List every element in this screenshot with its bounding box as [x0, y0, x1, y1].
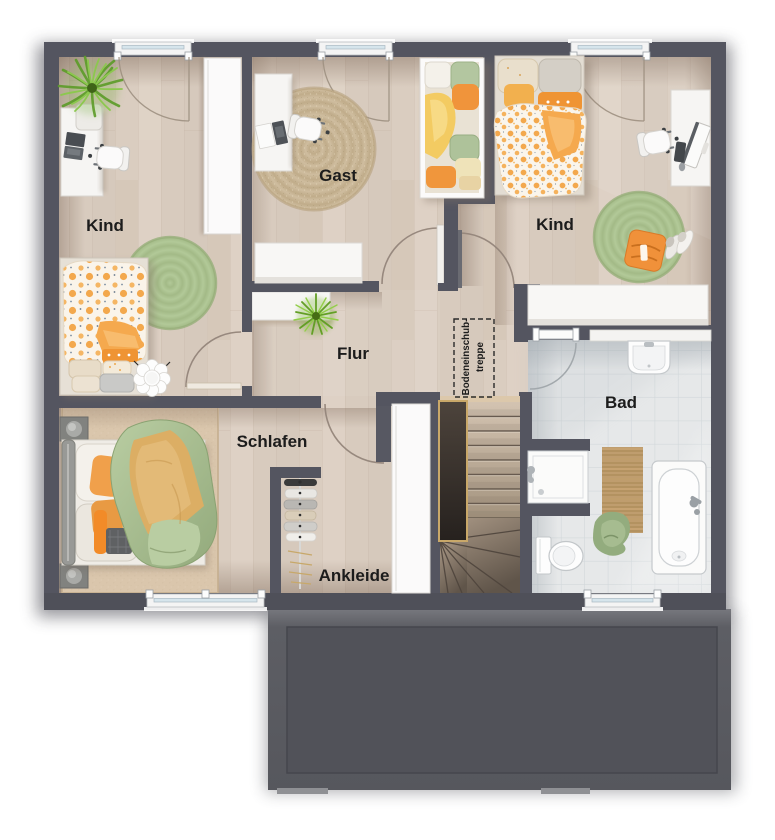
- svg-text:treppe: treppe: [475, 341, 486, 371]
- svg-text:Kind: Kind: [86, 216, 124, 235]
- svg-text:Schlafen: Schlafen: [237, 432, 308, 451]
- svg-text:Ankleide: Ankleide: [319, 566, 390, 585]
- svg-text:Bodeneinschub-: Bodeneinschub-: [461, 319, 472, 396]
- svg-text:Flur: Flur: [337, 344, 369, 363]
- svg-text:Gast: Gast: [319, 166, 357, 185]
- svg-text:Bad: Bad: [605, 393, 637, 412]
- svg-text:Kind: Kind: [536, 215, 574, 234]
